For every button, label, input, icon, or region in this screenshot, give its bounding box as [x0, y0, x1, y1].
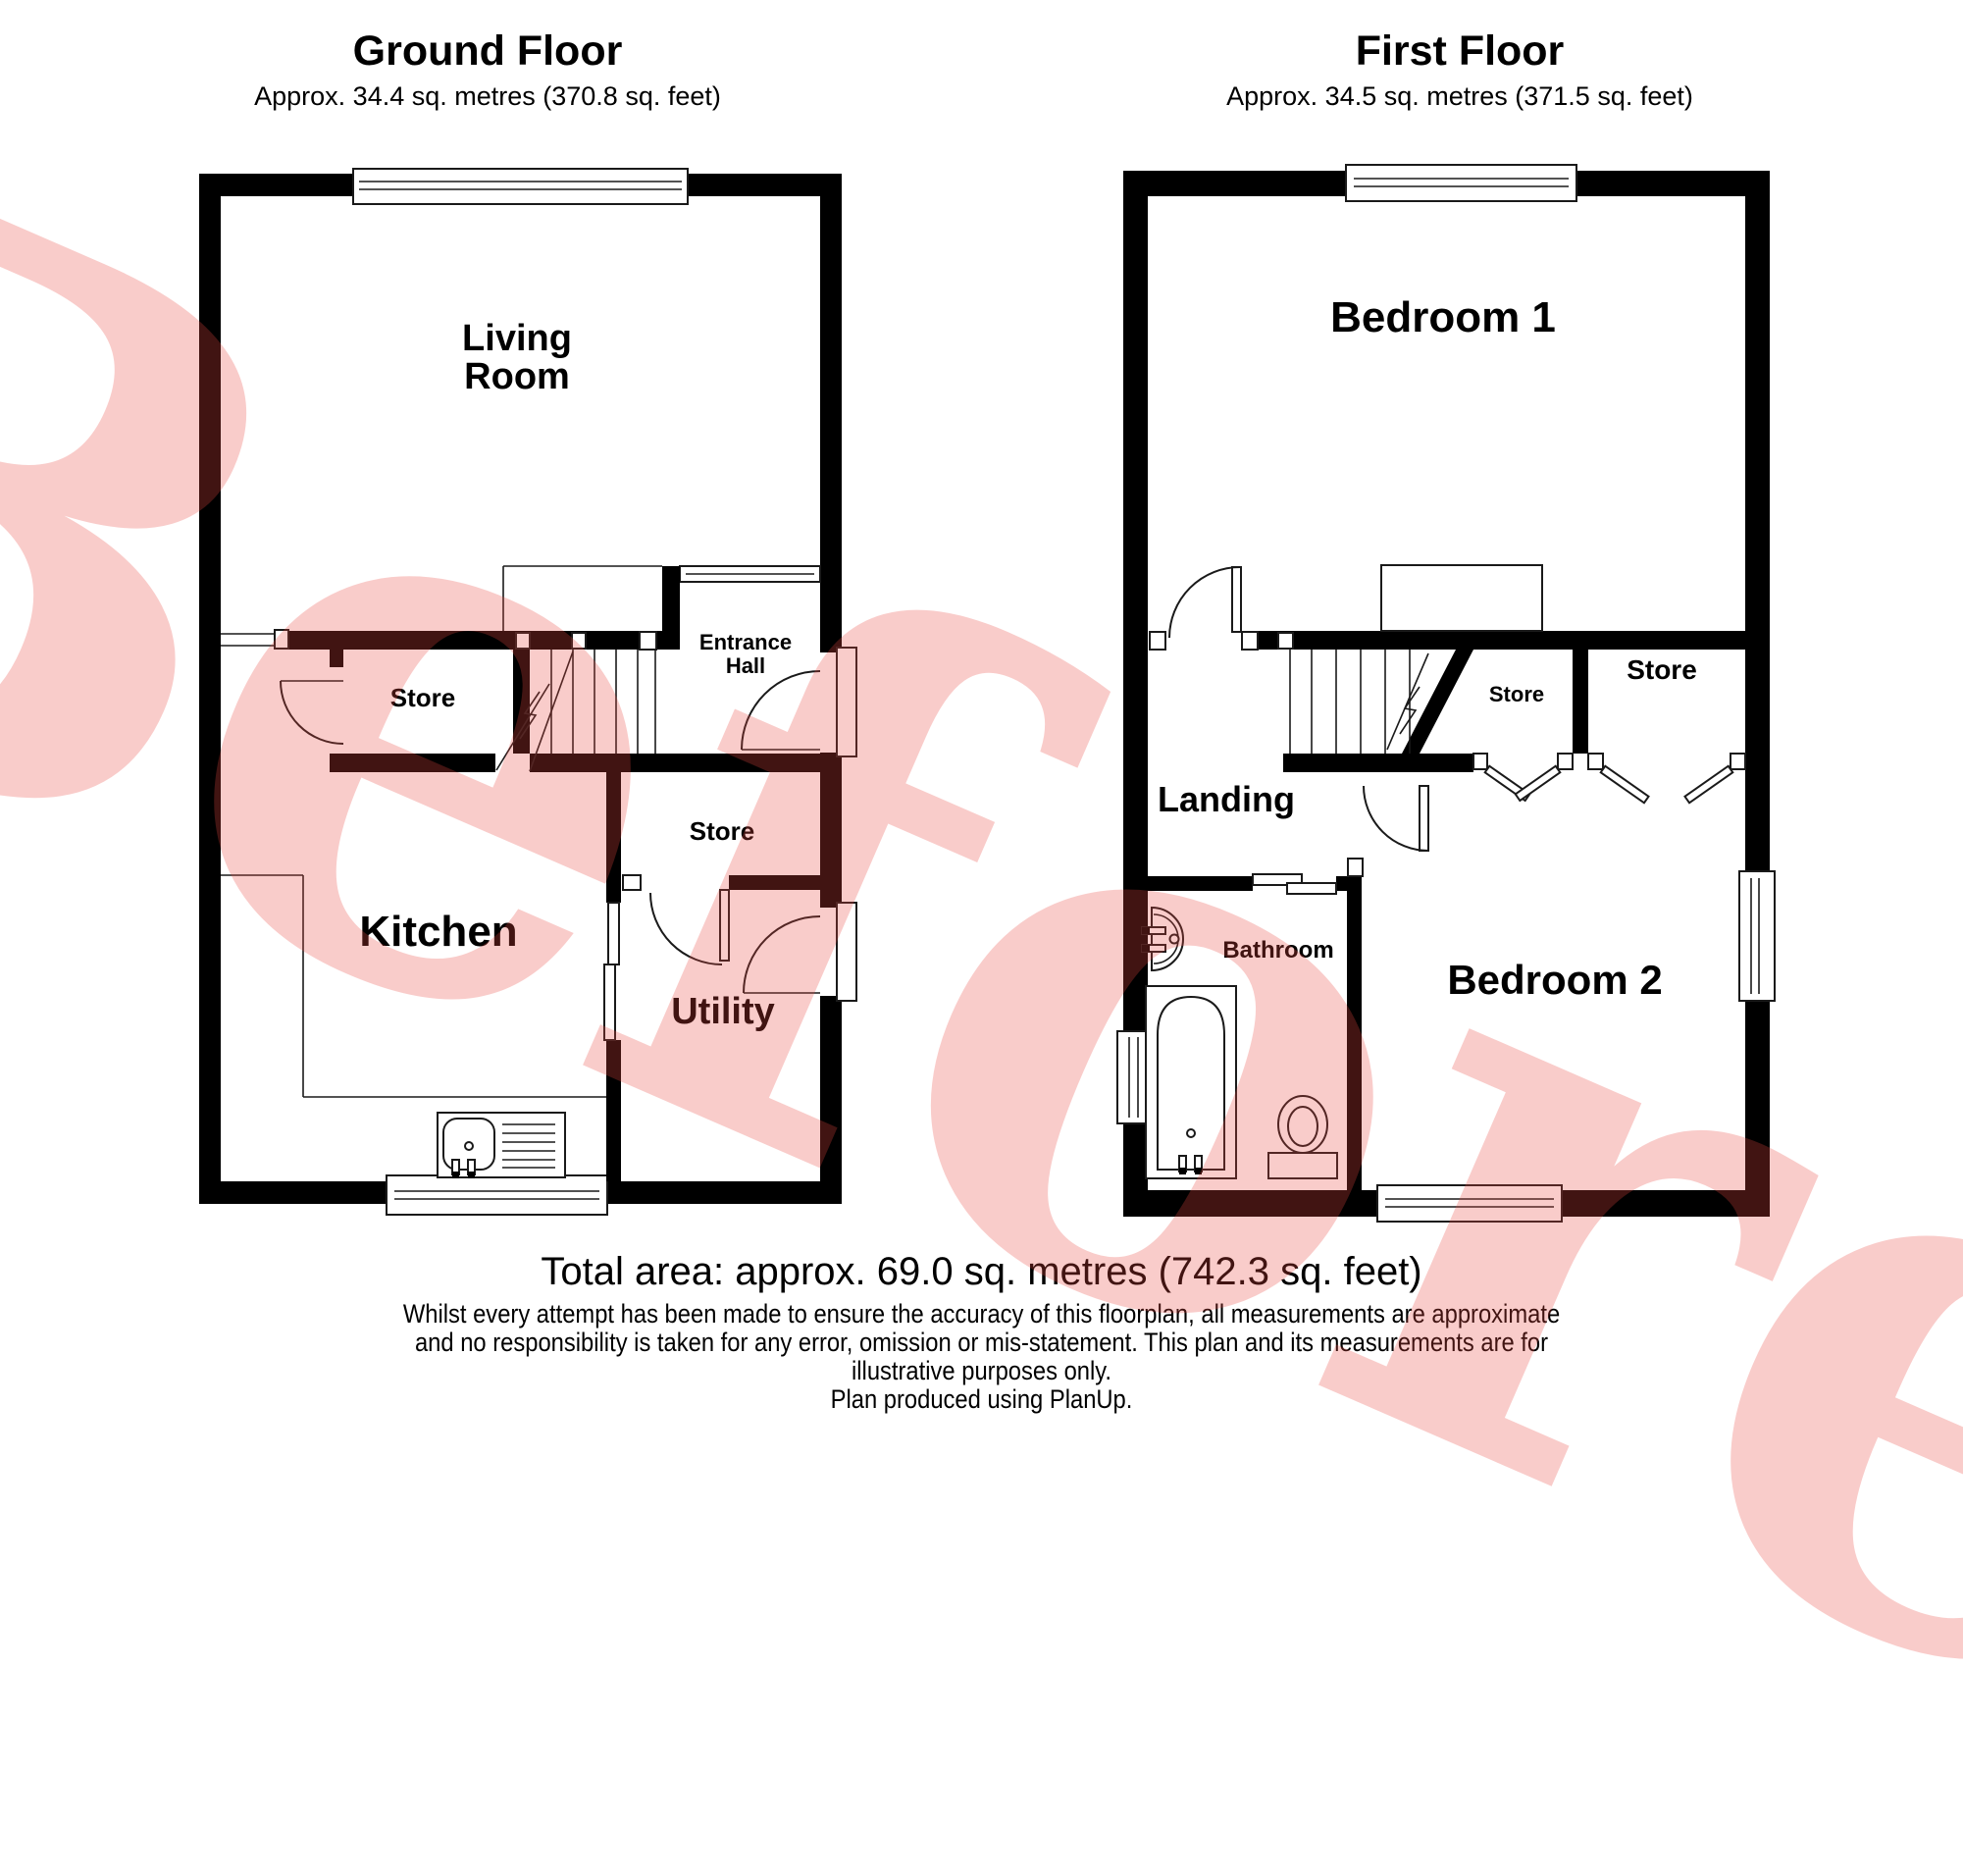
gf-label-utility: Utility	[671, 991, 775, 1032]
gf-store2-door	[650, 890, 729, 964]
ff-label-bathroom: Bathroom	[1222, 937, 1333, 964]
first-floor-subtitle: Approx. 34.5 sq. metres (371.5 sq. feet)	[1116, 81, 1803, 112]
ground-floor-title-block: Ground Floor Approx. 34.4 sq. metres (37…	[144, 27, 831, 112]
ff-bedroom1-door	[1169, 567, 1241, 638]
ff-label-store-2: Store	[1627, 654, 1697, 685]
total-area-line: Total area: approx. 69.0 sq. metres (742…	[0, 1250, 1963, 1294]
ff-bedroom1-wardrobe	[1381, 565, 1542, 631]
ff-top-window	[1346, 165, 1576, 201]
gf-top-window	[353, 169, 688, 204]
ff-bedroom2-right-window	[1739, 871, 1775, 1001]
ff-label-store-1: Store	[1489, 682, 1544, 706]
credit-line: Plan produced using PlanUp.	[118, 1385, 1845, 1414]
first-floor-title-block: First Floor Approx. 34.5 sq. metres (371…	[1116, 27, 1803, 112]
ff-bathroom-sliding-door	[1253, 874, 1336, 894]
ff-landing-door	[1364, 786, 1428, 851]
ff-understairs-diagonal-wall	[1402, 650, 1473, 754]
gf-store1-door	[281, 681, 343, 744]
gf-label-entrance-hall-1: Entrance	[699, 630, 792, 654]
ff-bathtub	[1146, 986, 1236, 1178]
first-floor-plan: Bedroom 1 Store Store Landing Bathroom B…	[1117, 165, 1775, 1222]
ff-interior-walls	[1148, 631, 1745, 1190]
ground-floor-subtitle: Approx. 34.4 sq. metres (370.8 sq. feet)	[144, 81, 831, 112]
floorplan-page: Ground Floor Approx. 34.4 sq. metres (37…	[0, 0, 1963, 1428]
gf-hall-internal-window	[680, 566, 820, 582]
ff-label-landing: Landing	[1158, 779, 1295, 819]
ff-bottom-window	[1377, 1185, 1562, 1222]
gf-label-kitchen: Kitchen	[359, 908, 517, 956]
ff-label-bedroom-2: Bedroom 2	[1447, 957, 1662, 1003]
ff-store1-bifold-doors	[1485, 766, 1561, 801]
ground-floor-title: Ground Floor	[144, 27, 831, 76]
gf-utility-external-door	[744, 903, 856, 1001]
first-floor-title: First Floor	[1116, 27, 1803, 76]
disclaimer-line-3: illustrative purposes only.	[118, 1357, 1845, 1385]
gf-wall-opening	[221, 630, 288, 649]
gf-bottom-window	[387, 1175, 607, 1215]
floorplan-drawing: Living Room Store Entrance Hall Store Ki…	[0, 0, 1963, 1428]
disclaimer-line-1: Whilst every attempt has been made to en…	[118, 1300, 1845, 1329]
gf-label-entrance-hall-2: Hall	[726, 653, 765, 678]
disclaimer-block: Whilst every attempt has been made to en…	[118, 1300, 1845, 1414]
gf-label-living-room-2: Room	[464, 356, 570, 397]
ff-store2-bifold-doors	[1601, 766, 1733, 804]
ff-basin	[1142, 908, 1183, 970]
gf-kitchen-sink	[438, 1113, 565, 1178]
ff-label-bedroom-1: Bedroom 1	[1330, 293, 1556, 341]
disclaimer-line-2: and no responsibility is taken for any e…	[118, 1329, 1845, 1357]
ff-toilet	[1268, 1096, 1337, 1178]
gf-label-store-1: Store	[390, 683, 455, 712]
ground-floor-plan: Living Room Store Entrance Hall Store Ki…	[199, 169, 856, 1215]
ff-staircase	[1290, 650, 1428, 754]
gf-label-living-room-1: Living	[462, 318, 572, 359]
gf-label-store-2: Store	[690, 816, 754, 846]
